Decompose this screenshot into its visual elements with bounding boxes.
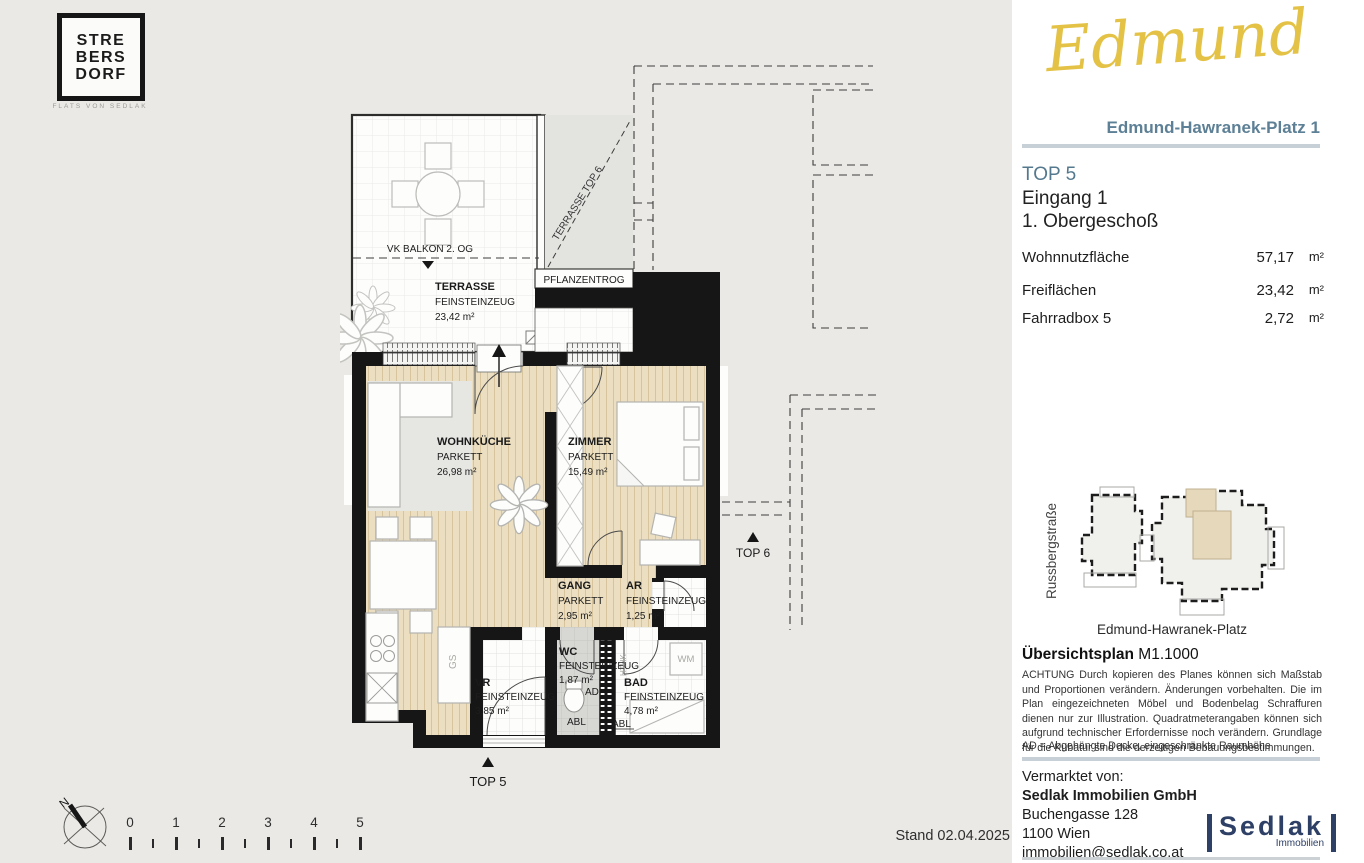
scale-num: 0 <box>118 815 142 830</box>
sedlak-logo-sub: Immobilien <box>1276 838 1324 849</box>
gang-area: 2,95 m² <box>558 611 593 622</box>
overview-title-bold: Übersichtsplan <box>1022 646 1134 663</box>
bad-floor: FEINSTEINZEUG <box>624 692 704 703</box>
bad-name: BAD <box>624 677 648 689</box>
bad-area: 4,78 m² <box>624 706 659 717</box>
area-label: Freiflächen <box>1022 282 1242 299</box>
street-left-label: Russbergstraße <box>1044 503 1059 599</box>
scale-num: 1 <box>164 815 188 830</box>
area-unit: m² <box>1294 310 1324 327</box>
ar-name: AR <box>626 580 642 592</box>
zimmer-area: 15,49 m² <box>568 467 608 478</box>
gang-floor: PARKETT <box>558 596 603 607</box>
plan-date: Stand 02.04.2025 <box>860 828 1010 844</box>
info-panel: Edmund Edmund-Hawranek-Platz 1 TOP 5 Ein… <box>1012 0 1364 863</box>
scale-num: 4 <box>302 815 326 830</box>
wc-abl: ABL <box>567 717 586 728</box>
ar-area: 1,25 m² <box>626 611 661 622</box>
top5-entry-marker: TOP 5 <box>469 757 506 789</box>
sedlak-logo-bar <box>1331 814 1336 852</box>
wm-label: WM <box>678 654 695 665</box>
unit-top: TOP 5 <box>1022 164 1076 186</box>
gs-label: GS <box>448 654 459 669</box>
scale-num: 3 <box>256 815 280 830</box>
marketer-city: 1100 Wien <box>1022 825 1197 844</box>
ar-floor: FEINSTEINZEUG <box>626 596 706 607</box>
page: STRE BERS DORF FLATS VON SEDLAK <box>0 0 1364 863</box>
terrace-top6-area: TERRASSE TOP 6 <box>545 115 633 270</box>
site-building-west <box>1082 495 1142 575</box>
strebersdorf-logo: STRE BERS DORF <box>57 13 145 101</box>
area-unit: m² <box>1294 282 1324 299</box>
gang-name: GANG <box>558 580 591 592</box>
edmund-script-logo: Edmund <box>1010 0 1344 88</box>
terrace-floor: FEINSTEINZEUG <box>435 297 515 308</box>
zimmer-name: ZIMMER <box>568 436 611 448</box>
brand-subtitle: FLATS VON SEDLAK <box>40 103 160 110</box>
compass: N <box>52 793 116 857</box>
pflanzentrog: PFLANZENTROG <box>535 269 633 352</box>
top6-label: TOP 6 <box>736 546 771 560</box>
area-row: Freiflächen 23,42 m² <box>1022 282 1324 299</box>
vr-area: 3,85 m² <box>475 706 510 717</box>
marketer-street: Buchengasse 128 <box>1022 806 1197 825</box>
wc-ad: AD <box>585 687 599 698</box>
unit-floor: 1. Obergeschoß <box>1022 211 1158 233</box>
area-value: 57,17 <box>1242 249 1294 266</box>
area-label: Wohnnutzfläche <box>1022 249 1242 266</box>
scale-num: 2 <box>210 815 234 830</box>
scale-num: 5 <box>348 815 372 830</box>
area-value: 2,72 <box>1242 310 1294 327</box>
area-label: Fahrradbox 5 <box>1022 310 1242 327</box>
vk-balkon-label: VK BALKON 2. OG <box>387 244 473 255</box>
project-address: Edmund-Hawranek-Platz 1 <box>1022 118 1320 138</box>
divider <box>1022 757 1320 761</box>
bad-abl: ABL <box>612 719 631 730</box>
area-row: Wohnnutzfläche 57,17 m² <box>1022 249 1324 266</box>
wc-area: 1,87 m² <box>559 675 594 686</box>
area-unit: m² <box>1294 249 1324 266</box>
pflanzentrog-label: PFLANZENTROG <box>543 275 624 286</box>
top6-entry-marker: TOP 6 <box>736 532 771 560</box>
wohnkueche-area: 26,98 m² <box>437 467 477 478</box>
floor-plan: VK BALKON 2. OG TERRASSE FEINSTEINZEUG 2… <box>340 55 900 795</box>
wohnkueche-floor: PARKETT <box>437 452 482 463</box>
wc-name: WC <box>559 646 577 658</box>
divider <box>1022 857 1320 860</box>
zimmer-floor: PARKETT <box>568 452 613 463</box>
marketer-email: immobilien@sedlak.co.at <box>1022 844 1197 863</box>
toilet-icon <box>564 686 584 712</box>
wc-floor: FEINSTEINZEUG <box>559 661 639 672</box>
marketer-company: Sedlak Immobilien GmbH <box>1022 787 1197 806</box>
overview-title: Übersichtsplan M1.1000 <box>1022 646 1199 664</box>
overview-scale: M1.1000 <box>1138 646 1198 663</box>
area-value: 23,42 <box>1242 282 1294 299</box>
brand-line: BERS <box>76 49 126 66</box>
wohnkueche-name: WOHNKÜCHE <box>437 435 511 448</box>
brand-line: DORF <box>75 66 126 83</box>
vr-floor: FEINSTEINZEUG <box>475 692 555 703</box>
marketer-block: Vermarktet von: Sedlak Immobilien GmbH B… <box>1022 768 1197 863</box>
site-map: Russbergstraße <box>1040 483 1300 623</box>
ad-note: AD = Abgehängte Decke, eingeschränkte Ra… <box>1022 740 1322 752</box>
divider <box>1022 144 1320 148</box>
terrace-name: TERRASSE <box>435 281 495 293</box>
area-row: Fahrradbox 5 2,72 m² <box>1022 310 1324 327</box>
brand-line: STRE <box>77 32 126 49</box>
street-bottom-label: Edmund-Hawranek-Platz <box>1052 622 1292 637</box>
marketer-intro: Vermarktet von: <box>1022 768 1197 787</box>
terrace-area: VK BALKON 2. OG TERRASSE FEINSTEINZEUG 2… <box>340 115 545 371</box>
scale-bar: 0 1 2 3 4 5 <box>118 815 388 857</box>
sedlak-logo: Sedlak Immobilien <box>1207 810 1336 852</box>
neighbour-wall-block <box>633 272 720 352</box>
unit-entrance: Eingang 1 <box>1022 188 1108 210</box>
top5-arrow-icon <box>482 757 494 767</box>
terrace-areaval: 23,42 m² <box>435 312 475 323</box>
top6-arrow-icon <box>747 532 759 542</box>
vr-name: VR <box>475 677 490 689</box>
top5-label: TOP 5 <box>469 774 506 789</box>
